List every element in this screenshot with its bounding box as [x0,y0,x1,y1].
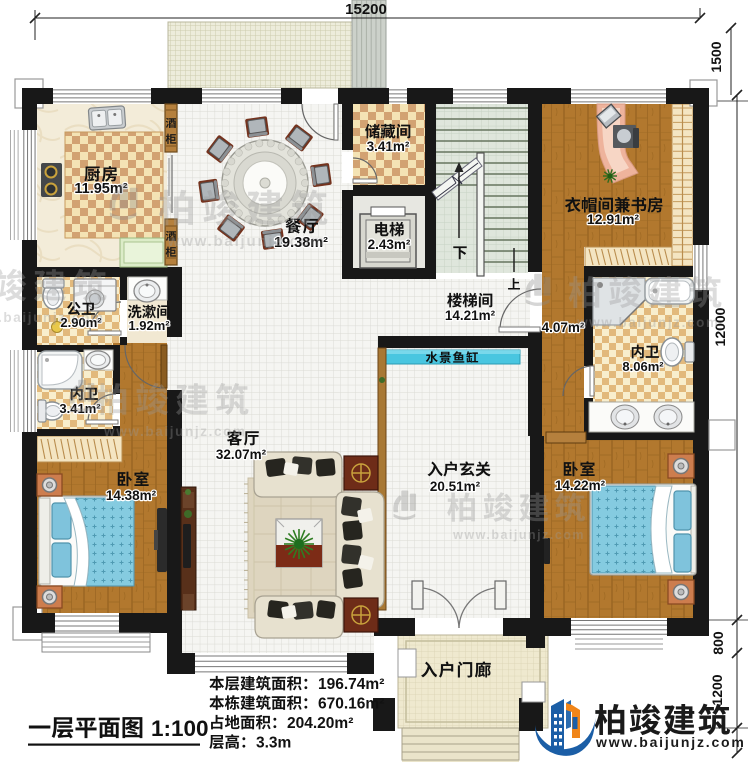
svg-text:20.51m²: 20.51m² [430,479,481,494]
svg-text:1.92m²: 1.92m² [128,318,170,333]
svg-text:15200: 15200 [345,1,387,18]
svg-text:www.baijunjz.com: www.baijunjz.com [576,315,719,330]
svg-text:32.07m²: 32.07m² [216,447,267,462]
svg-text:8.06m²: 8.06m² [622,359,664,374]
svg-text:196.74m²: 196.74m² [318,676,384,693]
svg-text:14.22m²: 14.22m² [555,478,606,493]
svg-text:3.41m²: 3.41m² [367,139,410,154]
svg-text:www.baijunjz.com: www.baijunjz.com [0,310,105,325]
svg-text:www.baijunjz.com: www.baijunjz.com [595,734,746,750]
svg-text:670.16m²: 670.16m² [318,696,384,713]
svg-text:1200: 1200 [709,674,725,705]
svg-text:2.43m²: 2.43m² [368,237,411,252]
svg-text:800: 800 [710,631,726,655]
svg-text:1500: 1500 [708,41,724,72]
svg-text:1:100: 1:100 [151,716,209,741]
svg-text:www.baijunjz.com: www.baijunjz.com [103,424,246,439]
svg-text:3.3m: 3.3m [256,735,291,752]
svg-text:14.38m²: 14.38m² [106,488,157,503]
svg-text:12.91m²: 12.91m² [587,211,639,227]
svg-text:www.baijunjz.com: www.baijunjz.com [452,528,585,542]
svg-text:www.baijunjz.com: www.baijunjz.com [167,233,326,250]
svg-text:14.21m²: 14.21m² [445,308,496,323]
svg-text:3.41m²: 3.41m² [59,401,101,416]
svg-text:204.20m²: 204.20m² [287,715,353,732]
